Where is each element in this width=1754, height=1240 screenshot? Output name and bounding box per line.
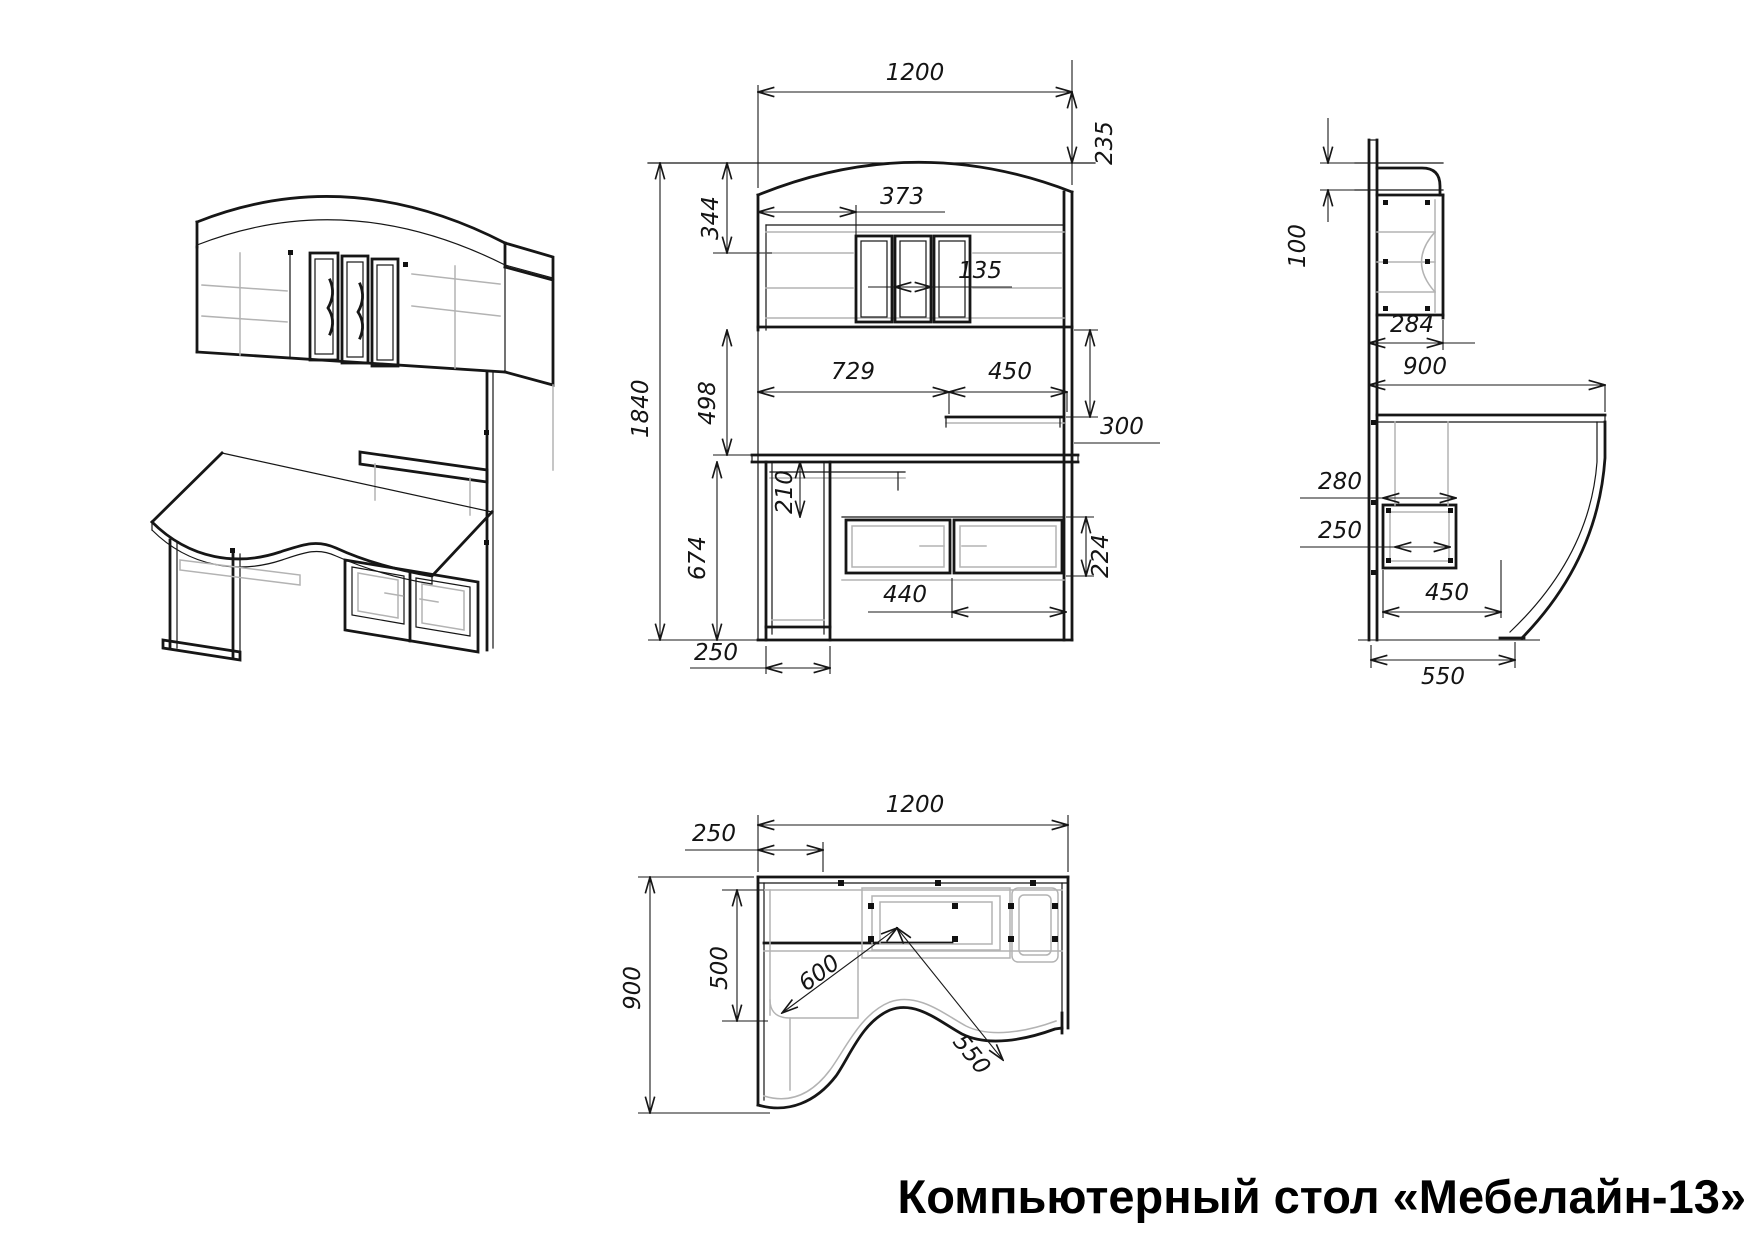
dim-front-hutch-height: 498 [695,381,721,425]
dim-front-shelf-drop: 300 [1100,414,1144,440]
dim-side-top-offset: 100 [1285,224,1311,268]
dim-side-box-width: 280 [1318,469,1362,495]
dim-side-base-depth: 550 [1421,664,1465,690]
dim-side-desk-depth: 900 [1403,354,1447,380]
dim-front-top-offset: 344 [698,196,724,240]
drawing-title: Компьютерный стол «Мебелайн-13» [898,1169,1746,1224]
isometric-view [152,196,553,660]
dim-side-box-inner: 250 [1318,518,1362,544]
front-view: 1200 235 344 373 135 1840 498 729 450 30… [628,60,1160,674]
dim-top-depth: 900 [620,966,646,1010]
dim-front-door-width: 135 [958,258,1002,284]
dim-top-radius-right: 550 [947,1029,995,1079]
dim-front-drawer-span: 440 [883,582,927,608]
dim-front-desk-right: 450 [988,359,1032,385]
top-view: 1200 250 900 500 600 550 [620,792,1068,1113]
dim-front-crown-height: 235 [1092,121,1118,165]
dim-top-side-panel-depth: 500 [707,946,733,990]
dim-front-shelf-span: 373 [880,184,924,210]
dim-front-drawer-height: 224 [1088,534,1114,578]
side-view: 100 284 900 280 250 450 550 [1285,118,1605,690]
dim-side-hutch-depth: 284 [1390,312,1434,338]
dim-top-side-offset: 250 [692,821,736,847]
dim-top-radius-left: 600 [794,950,845,997]
dim-front-pedestal-width: 250 [694,640,738,666]
blueprint-drawing: 1200 235 344 373 135 1840 498 729 450 30… [0,0,1754,1240]
dim-front-tray-drop: 210 [772,470,798,514]
dim-front-underdesk-height: 674 [685,536,711,580]
dim-front-desk-left: 729 [831,359,875,385]
dim-front-width: 1200 [886,60,945,86]
dim-front-total-height: 1840 [628,379,654,438]
blueprint-sheet: 1200 235 344 373 135 1840 498 729 450 30… [0,0,1754,1240]
dim-top-width: 1200 [886,792,945,818]
dim-side-shelf-span: 450 [1425,580,1469,606]
